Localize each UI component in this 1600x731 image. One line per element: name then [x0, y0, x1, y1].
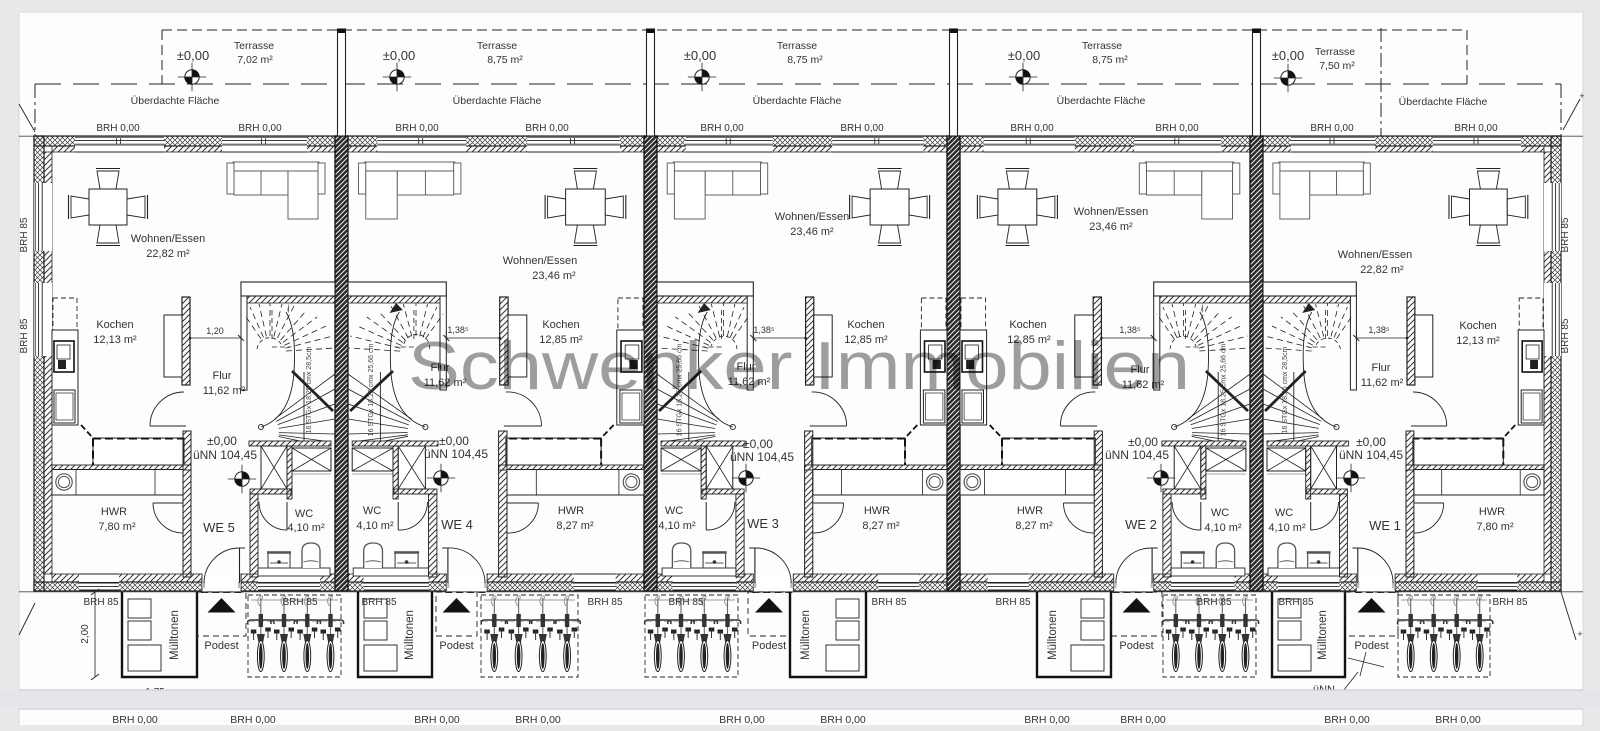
svg-text:üNN 104,45: üNN 104,45 [730, 450, 794, 464]
svg-text:7,80 m²: 7,80 m² [98, 521, 136, 533]
svg-text:HWR: HWR [864, 505, 890, 517]
svg-text:±0,00: ±0,00 [1356, 435, 1386, 449]
svg-text:+: + [1579, 91, 1584, 101]
svg-text:BRH 0,00: BRH 0,00 [515, 714, 561, 726]
svg-text:BRH 85: BRH 85 [587, 597, 622, 608]
svg-text:BRH 85: BRH 85 [361, 597, 396, 608]
svg-text:Mülltonen: Mülltonen [800, 610, 812, 660]
svg-text:8,27 m²: 8,27 m² [1015, 520, 1053, 532]
svg-text:Kochen: Kochen [1459, 320, 1496, 332]
svg-text:±0,00: ±0,00 [177, 48, 209, 63]
svg-text:1,20: 1,20 [206, 326, 224, 336]
svg-text:BRH 0,00: BRH 0,00 [1120, 714, 1166, 726]
svg-text:WC: WC [295, 508, 313, 520]
svg-text:WE 2: WE 2 [1125, 517, 1157, 532]
svg-text:BRH 0,00: BRH 0,00 [238, 123, 282, 134]
svg-text:2,00: 2,00 [80, 624, 91, 644]
svg-text:WE 1: WE 1 [1369, 518, 1401, 533]
svg-text:BRH 0,00: BRH 0,00 [395, 123, 439, 134]
svg-text:16 STGx 18,25 cmx 28,5cm: 16 STGx 18,25 cmx 28,5cm [1282, 346, 1289, 433]
svg-text:Kochen: Kochen [96, 319, 133, 331]
svg-text:WC: WC [1211, 507, 1229, 519]
svg-text:BRH 0,00: BRH 0,00 [1155, 123, 1199, 134]
svg-text:BRH 0,00: BRH 0,00 [414, 714, 460, 726]
svg-text:Mülltonen: Mülltonen [169, 610, 181, 660]
svg-text:BRH 0,00: BRH 0,00 [1324, 714, 1370, 726]
svg-text:BRH 0,00: BRH 0,00 [1024, 714, 1070, 726]
svg-text:7,50 m²: 7,50 m² [1319, 60, 1355, 72]
svg-text:BRH 0,00: BRH 0,00 [230, 714, 276, 726]
svg-text:4,10 m²: 4,10 m² [658, 520, 696, 532]
svg-text:BRH 0,00: BRH 0,00 [1010, 123, 1054, 134]
svg-text:BRH 85: BRH 85 [83, 597, 118, 608]
svg-text:4,10 m²: 4,10 m² [1268, 522, 1306, 534]
svg-text:Wohnen/Essen: Wohnen/Essen [775, 211, 849, 223]
svg-text:Wohnen/Essen: Wohnen/Essen [131, 233, 205, 245]
svg-text:BRH 85: BRH 85 [19, 217, 30, 252]
svg-text:±0,00: ±0,00 [383, 48, 415, 63]
svg-text:Überdachte Fläche: Überdachte Fläche [1399, 96, 1488, 108]
svg-text:BRH 85: BRH 85 [1196, 597, 1231, 608]
svg-text:Wohnen/Essen: Wohnen/Essen [1074, 206, 1148, 218]
svg-text:üNN 104,45: üNN 104,45 [1105, 448, 1169, 462]
svg-text:Terrasse: Terrasse [477, 40, 517, 52]
svg-text:11,62 m²: 11,62 m² [1361, 377, 1404, 389]
svg-text:BRH 85: BRH 85 [1560, 318, 1571, 353]
svg-text:Terrasse: Terrasse [1315, 46, 1355, 58]
svg-text:BRH 85: BRH 85 [1278, 597, 1313, 608]
svg-text:7,02 m²: 7,02 m² [237, 54, 273, 66]
svg-text:HWR: HWR [1479, 506, 1505, 518]
svg-text:BRH 85: BRH 85 [871, 597, 906, 608]
svg-text:Wohnen/Essen: Wohnen/Essen [1338, 249, 1412, 261]
svg-text:WE 3: WE 3 [747, 516, 779, 531]
svg-text:HWR: HWR [1017, 505, 1043, 517]
svg-text:BRH 85: BRH 85 [282, 597, 317, 608]
svg-text:8,75 m²: 8,75 m² [1092, 54, 1128, 66]
svg-text:BRH 0,00: BRH 0,00 [112, 714, 158, 726]
svg-text:8,75 m²: 8,75 m² [487, 54, 523, 66]
svg-text:Wohnen/Essen: Wohnen/Essen [503, 255, 577, 267]
svg-text:4,10 m²: 4,10 m² [1204, 522, 1242, 534]
svg-text:8,27 m²: 8,27 m² [556, 520, 594, 532]
svg-text:12,13 m²: 12,13 m² [1456, 335, 1500, 347]
svg-text:16 STGx 18,25 cmx 25,66 cm: 16 STGx 18,25 cmx 25,66 cm [368, 344, 375, 437]
svg-text:BRH 85: BRH 85 [995, 597, 1030, 608]
svg-text:BRH 0,00: BRH 0,00 [1454, 123, 1498, 134]
svg-text:Podest: Podest [752, 640, 786, 652]
svg-text:Terrasse: Terrasse [777, 40, 817, 52]
svg-text:23,46 m²: 23,46 m² [790, 226, 834, 238]
svg-text:Podest: Podest [1119, 640, 1153, 652]
svg-text:Flur: Flur [213, 370, 232, 382]
svg-text:+: + [1577, 629, 1582, 639]
svg-text:Podest: Podest [439, 640, 473, 652]
svg-text:Mülltonen: Mülltonen [404, 610, 416, 660]
svg-text:Podest: Podest [1354, 640, 1388, 652]
svg-text:7,80 m²: 7,80 m² [1476, 521, 1514, 533]
svg-text:±0,00: ±0,00 [439, 434, 469, 448]
svg-text:Schwenker Immobilien: Schwenker Immobilien [408, 328, 1190, 404]
svg-text:BRH 85: BRH 85 [1560, 217, 1571, 252]
svg-text:22,82 m²: 22,82 m² [146, 248, 190, 260]
svg-text:1,38⁵: 1,38⁵ [1368, 325, 1390, 335]
svg-text:4,10 m²: 4,10 m² [356, 520, 394, 532]
svg-text:WE 4: WE 4 [441, 517, 473, 532]
svg-text:8,75 m²: 8,75 m² [787, 54, 823, 66]
svg-text:BRH 0,00: BRH 0,00 [1310, 123, 1354, 134]
svg-text:22,82 m²: 22,82 m² [1360, 264, 1404, 276]
svg-text:Terrasse: Terrasse [234, 40, 274, 52]
svg-text:Überdachte Fläche: Überdachte Fläche [131, 95, 220, 107]
svg-text:8,27 m²: 8,27 m² [862, 520, 900, 532]
svg-text:HWR: HWR [101, 506, 127, 518]
svg-text:BRH 0,00: BRH 0,00 [1435, 714, 1481, 726]
svg-text:üNN 104,45: üNN 104,45 [193, 448, 257, 462]
svg-text:BRH 85: BRH 85 [19, 318, 30, 353]
svg-text:±0,00: ±0,00 [684, 48, 716, 63]
svg-text:BRH 85: BRH 85 [1492, 597, 1527, 608]
svg-text:BRH 0,00: BRH 0,00 [719, 714, 765, 726]
svg-text:BRH 0,00: BRH 0,00 [820, 714, 866, 726]
svg-text:4,10 m²: 4,10 m² [287, 522, 325, 534]
svg-text:16 STGx 18,25 cmx 28,5cm: 16 STGx 18,25 cmx 28,5cm [306, 346, 313, 433]
svg-text:WC: WC [665, 505, 683, 517]
svg-text:BRH 0,00: BRH 0,00 [525, 123, 569, 134]
svg-text:Mülltonen: Mülltonen [1047, 610, 1059, 660]
svg-text:WC: WC [363, 505, 381, 517]
svg-text:±0,00: ±0,00 [1272, 48, 1304, 63]
svg-text:±0,00: ±0,00 [1128, 435, 1158, 449]
svg-text:üNN 104,45: üNN 104,45 [424, 447, 488, 461]
svg-text:±0,00: ±0,00 [1008, 48, 1040, 63]
svg-text:±0,00: ±0,00 [743, 437, 773, 451]
svg-text:Überdachte Fläche: Überdachte Fläche [753, 95, 842, 107]
svg-text:16 STGx 18,25 cmx 25,66 cm: 16 STGx 18,25 cmx 25,66 cm [1220, 344, 1227, 437]
svg-text:BRH 0,00: BRH 0,00 [840, 123, 884, 134]
svg-text:HWR: HWR [558, 505, 584, 517]
svg-text:BRH 0,00: BRH 0,00 [96, 123, 140, 134]
svg-text:23,46 m²: 23,46 m² [1089, 221, 1133, 233]
svg-text:WE 5: WE 5 [203, 520, 235, 535]
svg-text:Podest: Podest [204, 640, 238, 652]
svg-text:WC: WC [1275, 507, 1293, 519]
svg-text:Mülltonen: Mülltonen [1317, 610, 1329, 660]
svg-text:üNN 104,45: üNN 104,45 [1339, 448, 1403, 462]
svg-text:Überdachte Fläche: Überdachte Fläche [1057, 95, 1146, 107]
svg-text:Flur: Flur [1372, 362, 1391, 374]
svg-text:23,46 m²: 23,46 m² [532, 270, 576, 282]
svg-text:12,13 m²: 12,13 m² [93, 334, 137, 346]
svg-text:±0,00: ±0,00 [207, 434, 237, 448]
svg-text:11,62 m²: 11,62 m² [203, 385, 246, 397]
svg-text:BRH 85: BRH 85 [668, 597, 703, 608]
svg-text:Terrasse: Terrasse [1082, 40, 1122, 52]
svg-text:BRH 0,00: BRH 0,00 [700, 123, 744, 134]
svg-text:Überdachte Fläche: Überdachte Fläche [453, 95, 542, 107]
